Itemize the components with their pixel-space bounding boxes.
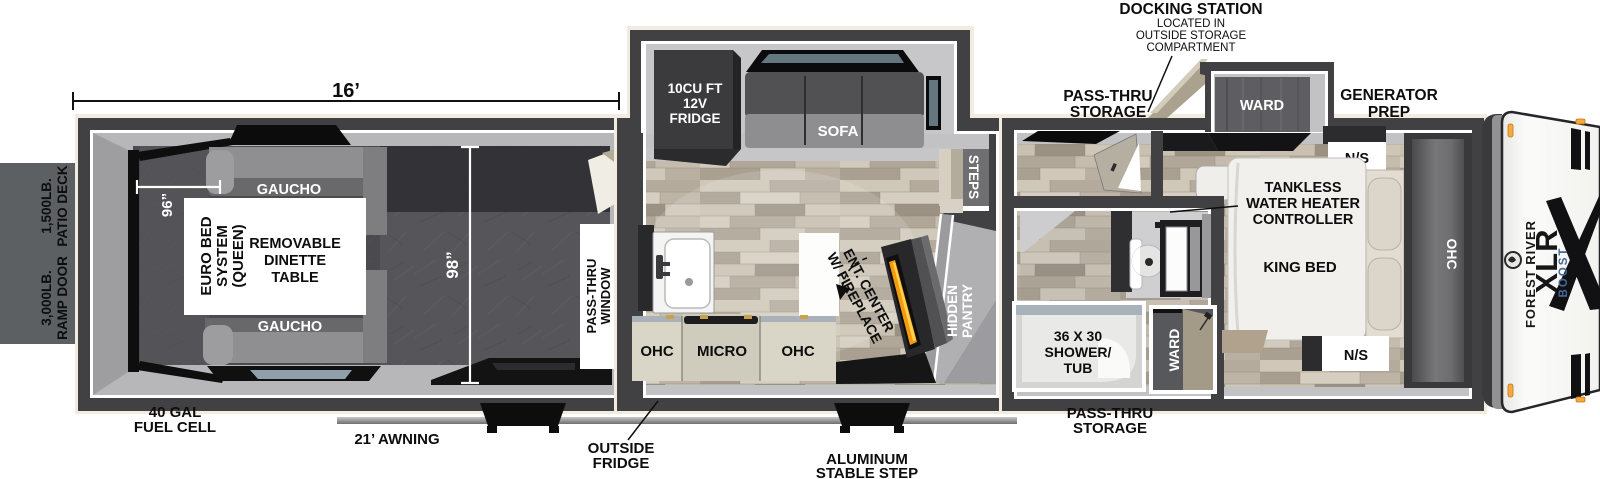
svg-text:GENERATOR: GENERATOR — [1340, 87, 1438, 104]
svg-text:16’: 16’ — [332, 80, 360, 102]
svg-text:OUTSIDE STORAGE: OUTSIDE STORAGE — [1136, 30, 1247, 42]
svg-text:(QUEEN): (QUEEN) — [230, 224, 247, 287]
svg-text:SHOWER/: SHOWER/ — [1045, 344, 1112, 360]
svg-text:WARD: WARD — [1166, 329, 1182, 372]
svg-text:GAUCHO: GAUCHO — [257, 182, 321, 198]
svg-text:WATER HEATER: WATER HEATER — [1246, 196, 1360, 212]
svg-text:GAUCHO: GAUCHO — [258, 319, 322, 335]
svg-text:DOCKING STATION: DOCKING STATION — [1119, 1, 1262, 18]
svg-text:SOFA: SOFA — [818, 123, 859, 140]
svg-text:STABLE STEP: STABLE STEP — [816, 465, 918, 479]
svg-text:KING BED: KING BED — [1263, 259, 1337, 276]
svg-text:PASS-THRU: PASS-THRU — [584, 259, 599, 334]
svg-text:FUEL CELL: FUEL CELL — [134, 419, 216, 436]
svg-text:21’ AWNING: 21’ AWNING — [354, 431, 439, 448]
svg-text:PASS-THRU: PASS-THRU — [1063, 88, 1152, 105]
svg-text:REMOVABLE: REMOVABLE — [249, 236, 341, 252]
svg-text:PREP: PREP — [1368, 104, 1410, 121]
svg-text:12V: 12V — [683, 96, 707, 111]
svg-text:WINDOW: WINDOW — [598, 267, 613, 325]
svg-text:OHC: OHC — [1444, 238, 1460, 269]
svg-text:OHC: OHC — [781, 343, 815, 360]
svg-text:STORAGE: STORAGE — [1073, 420, 1147, 437]
svg-text:HIDDENPANTRY: HIDDENPANTRY — [945, 284, 975, 338]
svg-text:FRIDGE: FRIDGE — [593, 455, 650, 472]
svg-text:BOOST: BOOST — [1558, 247, 1570, 298]
svg-text:N/S: N/S — [1344, 348, 1369, 364]
svg-text:98”: 98” — [443, 251, 462, 278]
svg-text:TANKLESS: TANKLESS — [1264, 180, 1341, 196]
svg-text:TABLE: TABLE — [271, 270, 319, 286]
svg-text:STEPS: STEPS — [966, 155, 981, 199]
svg-text:MICRO: MICRO — [697, 343, 747, 360]
svg-text:STORAGE: STORAGE — [1070, 104, 1146, 121]
svg-text:EURO BED: EURO BED — [198, 216, 215, 295]
svg-text:10CU FT: 10CU FT — [668, 81, 724, 96]
svg-text:LOCATED IN: LOCATED IN — [1157, 18, 1225, 30]
svg-text:OHC: OHC — [640, 343, 674, 360]
svg-text:DINETTE: DINETTE — [264, 253, 326, 269]
svg-text:WARD: WARD — [1240, 98, 1284, 114]
svg-text:TUB: TUB — [1064, 360, 1093, 376]
svg-text:SYSTEM: SYSTEM — [214, 225, 231, 287]
svg-text:COMPARTMENT: COMPARTMENT — [1146, 42, 1235, 54]
svg-text:96”: 96” — [159, 193, 176, 217]
svg-text:36 X 30: 36 X 30 — [1054, 328, 1102, 344]
svg-text:CONTROLLER: CONTROLLER — [1253, 212, 1354, 228]
svg-text:FRIDGE: FRIDGE — [669, 111, 720, 126]
